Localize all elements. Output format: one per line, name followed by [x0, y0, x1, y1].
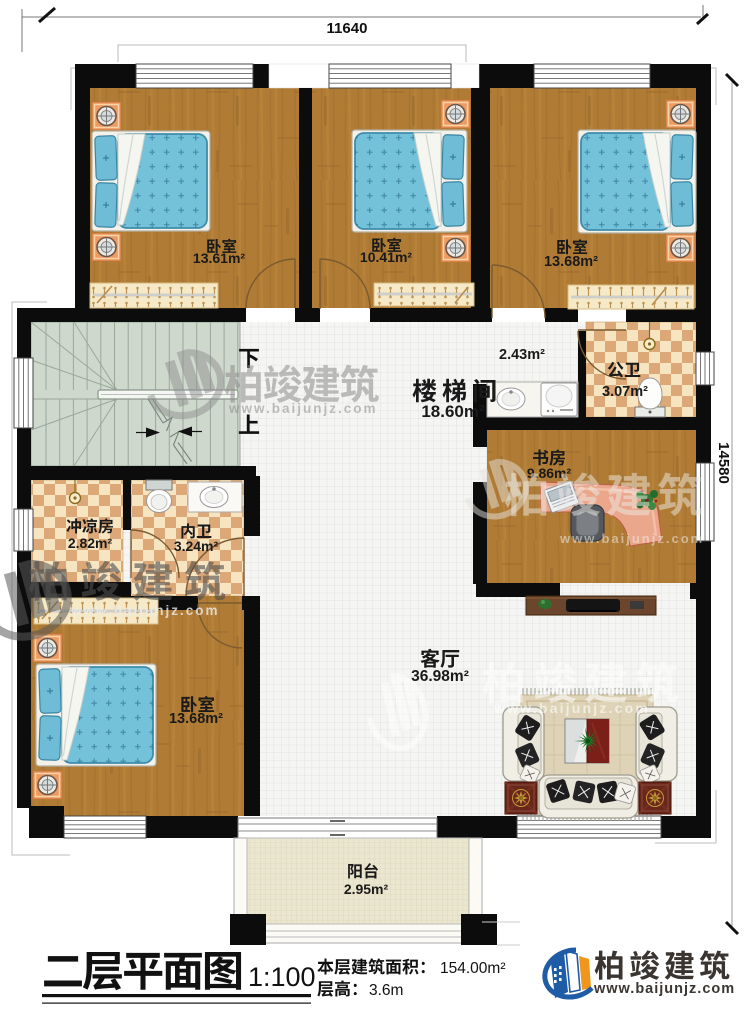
svg-text:13.61m²: 13.61m²: [193, 250, 245, 266]
svg-text:14580: 14580: [715, 442, 732, 484]
svg-text:3.6m: 3.6m: [369, 982, 403, 999]
svg-text:36.98m²: 36.98m²: [411, 668, 469, 685]
svg-text:www.baijunjz.com: www.baijunjz.com: [493, 700, 650, 716]
svg-text:2.43m²: 2.43m²: [499, 347, 545, 363]
svg-text:1:100: 1:100: [248, 962, 316, 992]
svg-text:13.68m²: 13.68m²: [169, 711, 223, 727]
svg-text:www.baijunjz.com: www.baijunjz.com: [559, 531, 704, 546]
svg-text:10.41m²: 10.41m²: [360, 249, 412, 265]
svg-text:18.60m²: 18.60m²: [421, 402, 485, 421]
svg-text:11640: 11640: [327, 20, 368, 37]
svg-text:3.07m²: 3.07m²: [602, 384, 648, 400]
svg-text:3.24m²: 3.24m²: [174, 538, 219, 554]
svg-text:www.baijunjz.com: www.baijunjz.com: [70, 603, 220, 618]
svg-text:www.baijunjz.com: www.baijunjz.com: [228, 401, 378, 416]
svg-text:www.baijunjz.com: www.baijunjz.com: [593, 981, 735, 997]
svg-text:2.95m²: 2.95m²: [344, 881, 389, 897]
svg-text:154.00m²: 154.00m²: [440, 960, 505, 977]
svg-text:13.68m²: 13.68m²: [544, 254, 598, 270]
svg-text:2.82m²: 2.82m²: [68, 535, 113, 551]
